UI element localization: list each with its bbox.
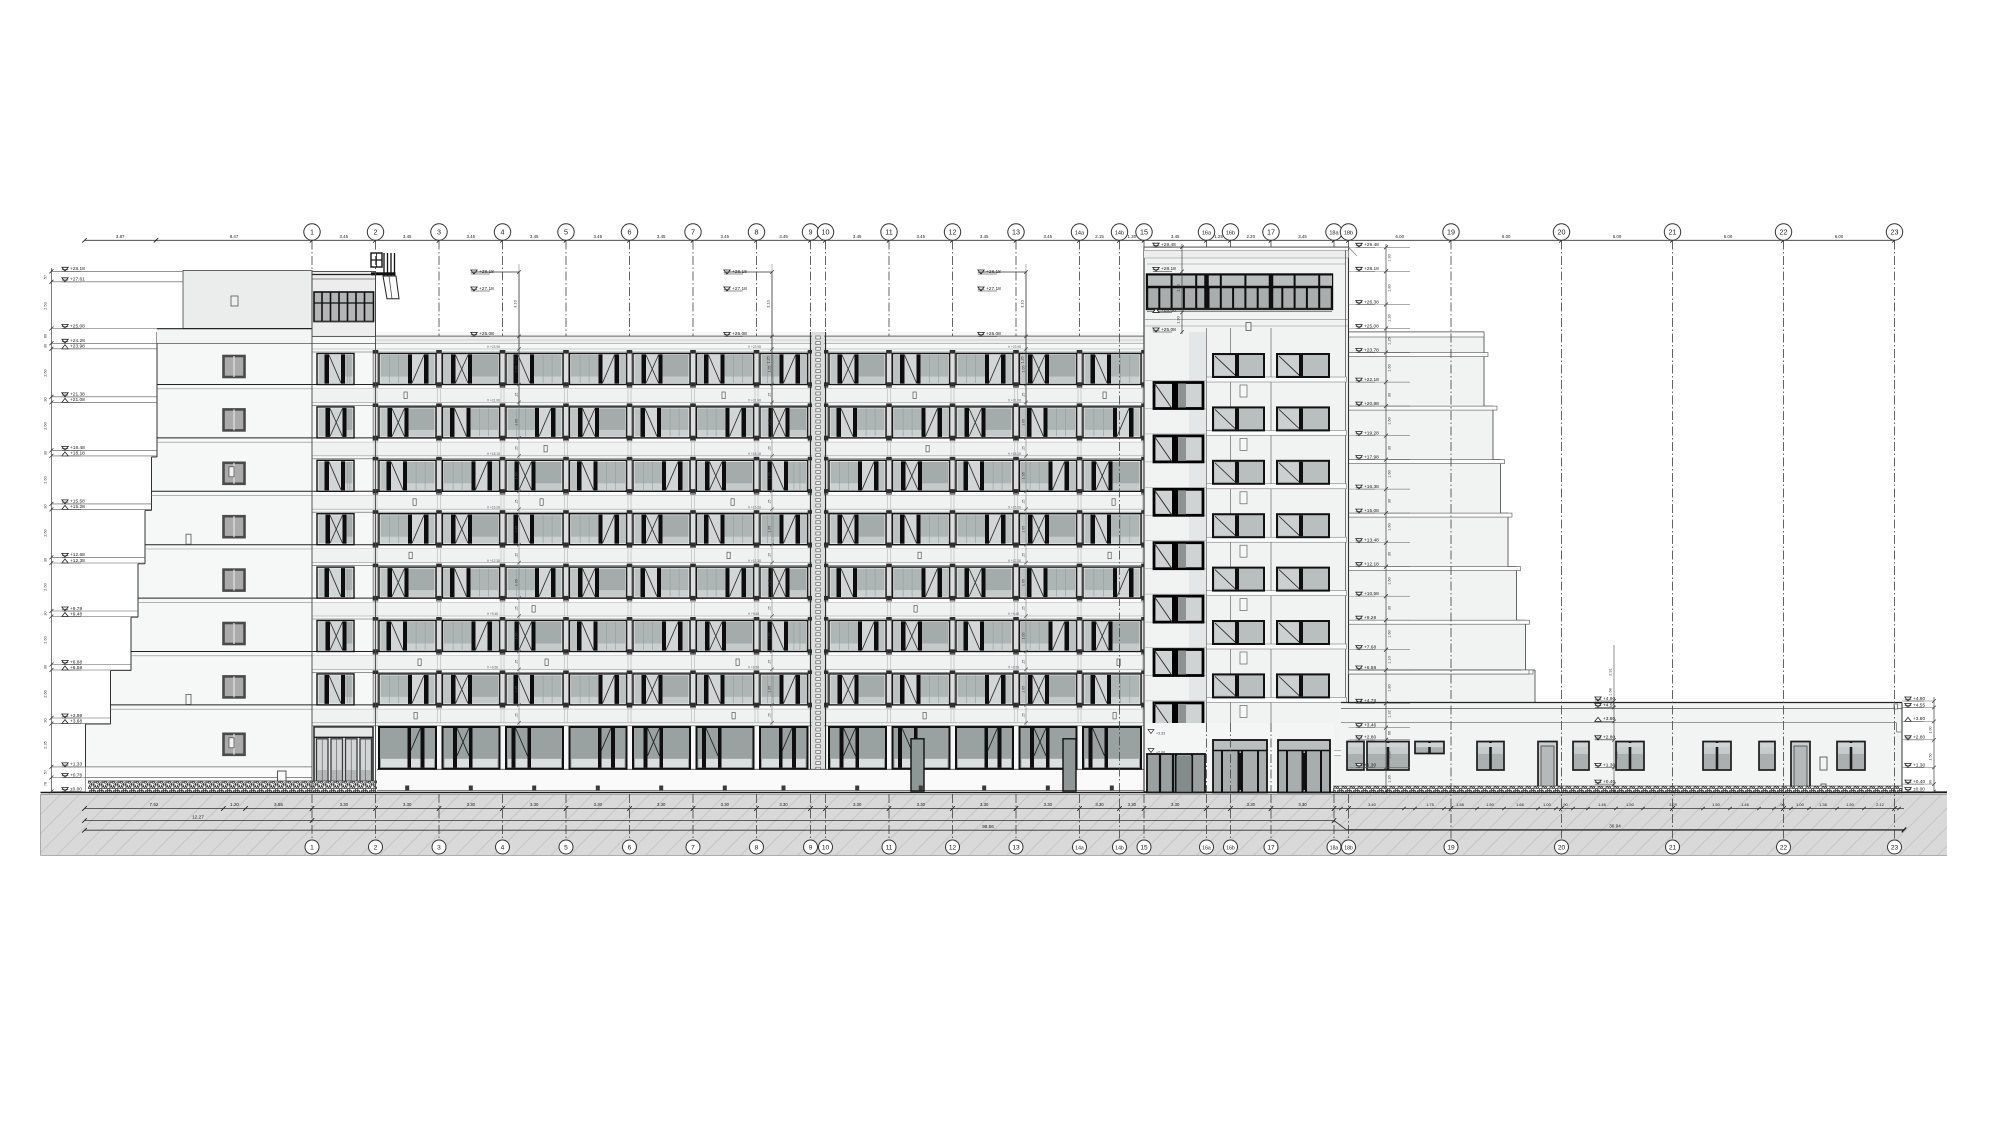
svg-text:1.50: 1.50 xyxy=(1846,802,1855,807)
svg-text:18a: 18a xyxy=(1329,231,1339,237)
svg-text:1.65: 1.65 xyxy=(768,366,772,373)
svg-text:6.00: 6.00 xyxy=(1502,234,1511,239)
svg-text:3.30: 3.30 xyxy=(594,802,603,807)
svg-text:∇ +23.98: ∇ +23.98 xyxy=(486,345,500,349)
svg-text:3.45: 3.45 xyxy=(657,234,666,239)
svg-text:19: 19 xyxy=(1447,228,1455,237)
svg-text:16a: 16a xyxy=(1202,231,1212,237)
svg-text:2.60: 2.60 xyxy=(44,369,48,376)
svg-text:∇ +12.38: ∇ +12.38 xyxy=(486,559,500,563)
svg-text:+25.08: +25.08 xyxy=(479,331,494,337)
svg-text:2.12: 2.12 xyxy=(1876,802,1885,807)
svg-text:3.30: 3.30 xyxy=(853,802,862,807)
svg-text:1.65: 1.65 xyxy=(1022,526,1026,533)
svg-text:2.53: 2.53 xyxy=(44,302,48,309)
svg-text:3: 3 xyxy=(437,228,441,237)
svg-text:.25: .25 xyxy=(768,499,772,504)
svg-text:1.65: 1.65 xyxy=(1022,579,1026,586)
svg-text:6: 6 xyxy=(628,844,632,851)
svg-text:1.30: 1.30 xyxy=(1388,254,1392,261)
svg-text:1.65: 1.65 xyxy=(515,633,519,640)
svg-text:∇ +6.58: ∇ +6.58 xyxy=(747,666,759,670)
svg-text:15: 15 xyxy=(1140,844,1148,851)
svg-text:1.80: 1.80 xyxy=(1176,283,1181,292)
svg-text:23: 23 xyxy=(1891,228,1899,237)
svg-text:3.45: 3.45 xyxy=(1171,234,1180,239)
svg-text:.25: .25 xyxy=(515,713,519,718)
svg-text:3.10: 3.10 xyxy=(513,299,518,308)
svg-text:+3.33: +3.33 xyxy=(1156,732,1165,736)
svg-text:8: 8 xyxy=(755,228,759,237)
svg-text:6.00: 6.00 xyxy=(1396,234,1405,239)
svg-text:80: 80 xyxy=(44,334,48,338)
svg-text:.25: .25 xyxy=(515,499,519,504)
svg-text:3.10: 3.10 xyxy=(1020,299,1025,308)
svg-text:5: 5 xyxy=(564,844,568,851)
svg-text:12: 12 xyxy=(949,228,957,237)
svg-text:+0.40: +0.40 xyxy=(1603,779,1615,785)
svg-text:1.00: 1.00 xyxy=(1543,802,1552,807)
svg-text:3.87: 3.87 xyxy=(116,234,125,239)
svg-text:1.65: 1.65 xyxy=(1022,366,1026,373)
svg-text:15: 15 xyxy=(1140,228,1148,237)
svg-text:+29.48: +29.48 xyxy=(1161,242,1176,248)
svg-text:1.30: 1.30 xyxy=(1388,775,1392,782)
svg-text:8: 8 xyxy=(755,844,759,851)
svg-text:30: 30 xyxy=(1388,446,1392,450)
svg-text:1.50: 1.50 xyxy=(1486,802,1495,807)
svg-text:3.45: 3.45 xyxy=(1044,234,1053,239)
svg-text:30: 30 xyxy=(44,718,48,722)
svg-text:+27.18: +27.18 xyxy=(732,286,747,292)
svg-text:4: 4 xyxy=(501,228,505,237)
svg-text:30: 30 xyxy=(1388,552,1392,556)
svg-text:2.60: 2.60 xyxy=(44,476,48,483)
svg-text:18a: 18a xyxy=(1330,845,1339,851)
svg-text:+27.18: +27.18 xyxy=(986,286,1001,292)
svg-text:3.30: 3.30 xyxy=(467,802,476,807)
svg-text:18b: 18b xyxy=(1344,845,1353,851)
svg-text:+26.38: +26.38 xyxy=(1161,307,1176,313)
svg-text:16b: 16b xyxy=(1226,845,1235,851)
svg-text:3.30: 3.30 xyxy=(340,802,349,807)
svg-text:1.46: 1.46 xyxy=(1598,802,1607,807)
svg-text:17: 17 xyxy=(1267,844,1275,851)
svg-text:3.45: 3.45 xyxy=(594,234,603,239)
svg-text:.25: .25 xyxy=(1022,393,1026,398)
svg-text:20: 20 xyxy=(1558,228,1566,237)
svg-text:3.30: 3.30 xyxy=(530,802,539,807)
svg-text:3.30: 3.30 xyxy=(980,802,989,807)
svg-text:90: 90 xyxy=(1929,780,1933,784)
svg-text:.25: .25 xyxy=(768,393,772,398)
svg-text:30: 30 xyxy=(44,504,48,508)
svg-text:6: 6 xyxy=(628,228,632,237)
svg-text:.25: .25 xyxy=(515,393,519,398)
svg-text:12.27: 12.27 xyxy=(192,814,204,819)
svg-text:7: 7 xyxy=(691,228,695,237)
svg-text:1.25: 1.25 xyxy=(1021,357,1025,364)
svg-text:2.60: 2.60 xyxy=(44,422,48,429)
svg-text:57: 57 xyxy=(44,770,48,774)
svg-text:1.00: 1.00 xyxy=(1796,802,1805,807)
svg-text:20: 20 xyxy=(1558,844,1566,851)
svg-text:1.65: 1.65 xyxy=(768,419,772,426)
svg-text:3.30: 3.30 xyxy=(721,802,730,807)
svg-text:1.25: 1.25 xyxy=(767,357,771,364)
svg-text:23: 23 xyxy=(1891,844,1899,851)
svg-text:3.45: 3.45 xyxy=(403,234,412,239)
svg-text:3: 3 xyxy=(437,844,441,851)
svg-text:+2.08: +2.08 xyxy=(1156,751,1165,755)
svg-text:∇ +15.28: ∇ +15.28 xyxy=(747,505,761,509)
svg-text:6.00: 6.00 xyxy=(1835,234,1844,239)
svg-text:3.45: 3.45 xyxy=(980,234,989,239)
svg-text:21: 21 xyxy=(1669,228,1677,237)
svg-text:+25.08: +25.08 xyxy=(732,331,747,337)
svg-text:∇ +15.28: ∇ +15.28 xyxy=(486,505,500,509)
svg-text:1.65: 1.65 xyxy=(1022,472,1026,479)
svg-text:∇ +18.18: ∇ +18.18 xyxy=(486,452,500,456)
svg-text:1.80: 1.80 xyxy=(1388,684,1392,691)
svg-text:∇ +18.18: ∇ +18.18 xyxy=(747,452,761,456)
svg-text:+1.30: +1.30 xyxy=(1603,762,1615,768)
svg-text:1.30: 1.30 xyxy=(1388,314,1392,321)
svg-text:.90: .90 xyxy=(1562,802,1568,807)
svg-text:9: 9 xyxy=(809,844,813,851)
svg-text:66: 66 xyxy=(1388,731,1392,735)
svg-text:.25: .25 xyxy=(1022,606,1026,611)
svg-text:3.30: 3.30 xyxy=(657,802,666,807)
svg-text:3.45: 3.45 xyxy=(779,234,788,239)
svg-text:2.60: 2.60 xyxy=(44,636,48,643)
svg-text:1.65: 1.65 xyxy=(1022,686,1026,693)
svg-text:1.20: 1.20 xyxy=(230,802,239,807)
svg-text:3.30: 3.30 xyxy=(1128,802,1137,807)
svg-text:.25: .25 xyxy=(515,446,519,451)
svg-text:14a: 14a xyxy=(1075,231,1085,237)
svg-text:17: 17 xyxy=(1267,228,1275,237)
svg-text:1.00: 1.00 xyxy=(1929,727,1933,734)
svg-text:22: 22 xyxy=(1780,844,1788,851)
svg-text:1.65: 1.65 xyxy=(768,526,772,533)
svg-text:1.80: 1.80 xyxy=(1388,284,1392,291)
svg-text:1.30: 1.30 xyxy=(1128,234,1137,239)
svg-text:22: 22 xyxy=(1780,228,1788,237)
svg-text:1.65: 1.65 xyxy=(1022,419,1026,426)
svg-text:30: 30 xyxy=(1388,393,1392,397)
svg-text:.25: .25 xyxy=(768,660,772,665)
svg-text:.25: .25 xyxy=(768,606,772,611)
svg-text:1.30: 1.30 xyxy=(1176,315,1181,324)
svg-text:.25: .25 xyxy=(768,553,772,558)
svg-text:3.45: 3.45 xyxy=(853,234,862,239)
svg-text:13: 13 xyxy=(1012,228,1020,237)
svg-text:3.45: 3.45 xyxy=(467,234,476,239)
svg-text:1.65: 1.65 xyxy=(515,526,519,533)
svg-text:30: 30 xyxy=(44,344,48,348)
svg-text:1.10: 1.10 xyxy=(1388,656,1392,663)
svg-text:3.30: 3.30 xyxy=(917,802,926,807)
svg-text:1.65: 1.65 xyxy=(515,686,519,693)
svg-text:+27.18: +27.18 xyxy=(479,286,494,292)
svg-text:12: 12 xyxy=(949,844,957,851)
svg-text:30: 30 xyxy=(44,451,48,455)
svg-text:+2.80: +2.80 xyxy=(1603,735,1615,741)
svg-text:5: 5 xyxy=(564,228,568,237)
svg-text:1.65: 1.65 xyxy=(515,472,519,479)
svg-text:1.68: 1.68 xyxy=(1609,688,1613,695)
svg-text:∇ +12.38: ∇ +12.38 xyxy=(747,559,761,563)
svg-text:1.25: 1.25 xyxy=(1214,234,1223,239)
svg-text:3.45: 3.45 xyxy=(721,234,730,239)
svg-text:1: 1 xyxy=(310,844,314,851)
svg-text:+4.90: +4.90 xyxy=(1603,696,1615,702)
svg-text:1.65: 1.65 xyxy=(768,686,772,693)
svg-text:∇ +9.48: ∇ +9.48 xyxy=(747,612,759,616)
svg-text:76: 76 xyxy=(44,782,48,786)
svg-text:10: 10 xyxy=(822,844,830,851)
svg-text:1.65: 1.65 xyxy=(1022,633,1026,640)
svg-text:1: 1 xyxy=(310,228,314,237)
svg-text:3.45: 3.45 xyxy=(917,234,926,239)
svg-text:10: 10 xyxy=(822,228,830,237)
svg-text:2.60: 2.60 xyxy=(44,529,48,536)
svg-text:30: 30 xyxy=(44,558,48,562)
svg-text:1.25: 1.25 xyxy=(1388,337,1392,344)
svg-text:3.30: 3.30 xyxy=(403,802,412,807)
svg-text:13: 13 xyxy=(1012,844,1020,851)
svg-text:18b: 18b xyxy=(1344,231,1353,237)
svg-text:2: 2 xyxy=(374,844,378,851)
svg-text:11: 11 xyxy=(886,844,893,851)
svg-text:1.50: 1.50 xyxy=(1388,751,1392,758)
svg-text:1.58: 1.58 xyxy=(1456,802,1465,807)
svg-text:1.50: 1.50 xyxy=(1626,802,1635,807)
svg-text:.25: .25 xyxy=(1022,446,1026,451)
svg-text:3.30: 3.30 xyxy=(1044,802,1053,807)
svg-text:.25: .25 xyxy=(1022,713,1026,718)
svg-text:2.60: 2.60 xyxy=(44,583,48,590)
svg-text:1.65: 1.65 xyxy=(768,579,772,586)
svg-text:30: 30 xyxy=(1388,499,1392,503)
svg-text:1.38: 1.38 xyxy=(1819,802,1828,807)
svg-text:9: 9 xyxy=(809,228,813,237)
svg-text:1.46: 1.46 xyxy=(1741,802,1750,807)
svg-text:.25: .25 xyxy=(1022,660,1026,665)
svg-text:3.40: 3.40 xyxy=(1368,802,1377,807)
svg-text:∇ +12.38: ∇ +12.38 xyxy=(1007,559,1021,563)
svg-text:30: 30 xyxy=(44,665,48,669)
svg-text:∇ +23.98: ∇ +23.98 xyxy=(1007,345,1021,349)
svg-text:1.75: 1.75 xyxy=(1426,802,1435,807)
svg-text:7.52: 7.52 xyxy=(150,802,159,807)
svg-text:1.65: 1.65 xyxy=(768,633,772,640)
svg-text:3.30: 3.30 xyxy=(1095,802,1104,807)
svg-text:∇ +18.18: ∇ +18.18 xyxy=(1007,452,1021,456)
svg-text:1.60: 1.60 xyxy=(1388,470,1392,477)
svg-text:3.30: 3.30 xyxy=(1171,802,1180,807)
svg-text:1.50: 1.50 xyxy=(1615,751,1619,758)
svg-text:6.00: 6.00 xyxy=(1724,234,1733,239)
svg-text:4: 4 xyxy=(501,844,505,851)
svg-text:1.50: 1.50 xyxy=(1929,754,1933,761)
svg-text:∇ +23.98: ∇ +23.98 xyxy=(747,345,761,349)
svg-text:1.65: 1.65 xyxy=(515,419,519,426)
svg-text:2: 2 xyxy=(374,228,378,237)
svg-text:+25.08: +25.08 xyxy=(1161,327,1176,333)
svg-text:3.55: 3.55 xyxy=(274,802,283,807)
svg-text:2.15: 2.15 xyxy=(1095,234,1104,239)
svg-text:14b: 14b xyxy=(1115,845,1124,851)
svg-text:2.20: 2.20 xyxy=(1247,234,1256,239)
svg-text:.25: .25 xyxy=(515,553,519,558)
svg-text:1.32: 1.32 xyxy=(1388,710,1392,717)
svg-text:+25.08: +25.08 xyxy=(986,331,1001,337)
svg-text:2.35: 2.35 xyxy=(44,741,48,748)
svg-text:.90: .90 xyxy=(1779,802,1785,807)
svg-text:1.65: 1.65 xyxy=(515,579,519,586)
svg-text:14a: 14a xyxy=(1075,845,1084,851)
svg-text:∇ +6.58: ∇ +6.58 xyxy=(1007,666,1019,670)
svg-text:3.30: 3.30 xyxy=(1298,802,1307,807)
svg-text:2.91: 2.91 xyxy=(1609,668,1613,675)
svg-text:+4.55: +4.55 xyxy=(1603,702,1615,708)
svg-text:∇ +9.48: ∇ +9.48 xyxy=(486,612,498,616)
svg-text:3.30: 3.30 xyxy=(779,802,788,807)
svg-text:98.56: 98.56 xyxy=(982,824,994,829)
svg-text:14b: 14b xyxy=(1115,231,1124,237)
svg-text:∇ +21.08: ∇ +21.08 xyxy=(747,399,761,403)
svg-text:11: 11 xyxy=(885,228,892,237)
svg-text:3.45: 3.45 xyxy=(1298,234,1307,239)
svg-text:.25: .25 xyxy=(1022,499,1026,504)
svg-text:30: 30 xyxy=(1388,606,1392,610)
svg-text:∇ +21.08: ∇ +21.08 xyxy=(1007,399,1021,403)
svg-text:19: 19 xyxy=(1447,844,1455,851)
svg-text:16a: 16a xyxy=(1202,845,1211,851)
svg-text:1.25: 1.25 xyxy=(514,357,518,364)
svg-text:.25: .25 xyxy=(768,446,772,451)
svg-text:1.60: 1.60 xyxy=(1388,417,1392,424)
svg-text:2.60: 2.60 xyxy=(44,690,48,697)
svg-text:.25: .25 xyxy=(515,660,519,665)
svg-text:6.00: 6.00 xyxy=(1613,234,1622,239)
svg-text:∇ +6.58: ∇ +6.58 xyxy=(486,666,498,670)
svg-text:1.60: 1.60 xyxy=(1388,630,1392,637)
svg-text:1.60: 1.60 xyxy=(1388,364,1392,371)
svg-text:57: 57 xyxy=(44,275,48,279)
svg-text:30: 30 xyxy=(44,611,48,615)
svg-text:+28.18: +28.18 xyxy=(1161,266,1176,272)
svg-text:30.94: 30.94 xyxy=(1609,823,1621,828)
svg-text:1.60: 1.60 xyxy=(1388,577,1392,584)
svg-text:3.45: 3.45 xyxy=(340,234,349,239)
svg-text:∇ +15.28: ∇ +15.28 xyxy=(1007,505,1021,509)
svg-text:7: 7 xyxy=(691,844,695,851)
svg-text:.25: .25 xyxy=(1022,553,1026,558)
svg-text:.25: .25 xyxy=(768,713,772,718)
svg-text:8.47: 8.47 xyxy=(230,234,239,239)
svg-text:1.50: 1.50 xyxy=(1712,802,1721,807)
svg-text:3.10: 3.10 xyxy=(766,299,771,308)
svg-text:3.45: 3.45 xyxy=(530,234,539,239)
svg-text:∇ +9.48: ∇ +9.48 xyxy=(1007,612,1019,616)
svg-text:3.30: 3.30 xyxy=(1247,802,1256,807)
svg-text:1.65: 1.65 xyxy=(768,472,772,479)
svg-text:30: 30 xyxy=(44,397,48,401)
svg-text:.25: .25 xyxy=(515,606,519,611)
svg-text:3.29: 3.29 xyxy=(1669,802,1678,807)
svg-text:∇ +21.08: ∇ +21.08 xyxy=(486,399,500,403)
svg-text:1.60: 1.60 xyxy=(1388,523,1392,530)
svg-text:1.65: 1.65 xyxy=(515,366,519,373)
svg-text:16b: 16b xyxy=(1226,231,1235,237)
svg-text:1.66: 1.66 xyxy=(1516,802,1525,807)
svg-text:21: 21 xyxy=(1669,844,1677,851)
